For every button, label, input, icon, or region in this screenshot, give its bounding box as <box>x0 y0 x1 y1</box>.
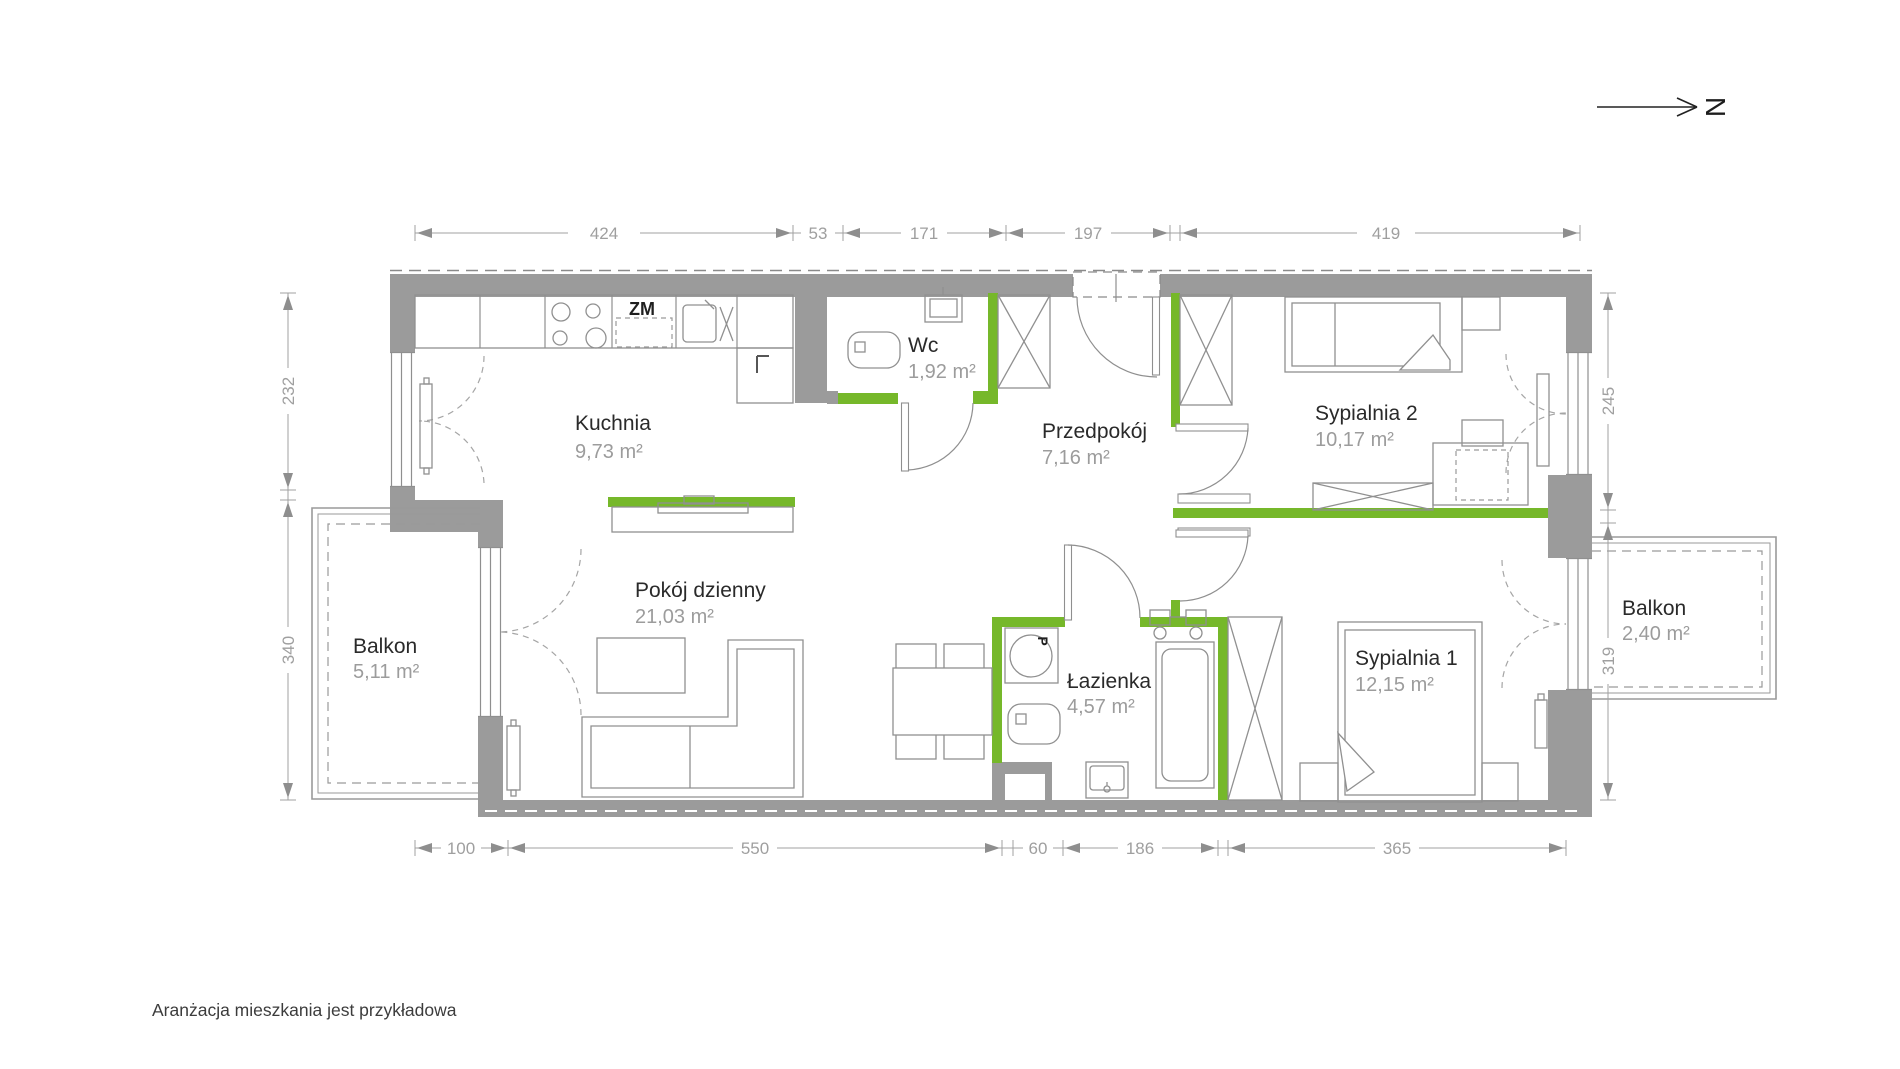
nightstand-right-icon <box>1482 763 1518 801</box>
sofa-icon <box>582 640 803 797</box>
dimension-bottom: 100 550 60 186 365 <box>415 839 1566 858</box>
dim-left-2: 340 <box>279 636 298 664</box>
room-name-lazienka: Łazienka <box>1067 670 1151 693</box>
dresser-bedroom2-icon <box>1313 483 1433 510</box>
window-bedroom1-balcony-door <box>1566 558 1592 690</box>
bathroom-sink-icon <box>1086 762 1128 798</box>
dim-bottom-5: 365 <box>1383 839 1411 858</box>
door-bedroom1 <box>1176 530 1248 601</box>
wardrobe-hall-icon <box>998 295 1050 388</box>
fridge-icon <box>737 348 793 403</box>
room-labels: Kuchnia 9,73 m² Wc 1,92 m² Przedpokój 7,… <box>353 334 1690 718</box>
washing-machine-label: P <box>1035 636 1051 645</box>
bathroom-toilet-icon <box>1008 704 1060 744</box>
door-wc <box>902 403 974 471</box>
bed-single-icon <box>1285 297 1462 372</box>
dimension-left: 232 340 <box>279 293 298 800</box>
wc-toilet-icon <box>848 332 900 368</box>
kitchen-sink-icon <box>683 300 733 342</box>
radiator-bedroom1-icon <box>1535 694 1547 748</box>
footer-note: Aranżacja mieszkania jest przykładowa <box>152 1000 457 1020</box>
north-label: N <box>1700 97 1731 117</box>
window-kitchen <box>390 352 415 487</box>
room-name-kuchnia: Kuchnia <box>575 412 651 435</box>
stove-icon <box>552 303 606 348</box>
room-name-balkon-prawy: Balkon <box>1622 597 1686 620</box>
room-area-pokoj-dzienny: 21,03 m² <box>635 606 714 628</box>
room-name-sypialnia1: Sypialnia 1 <box>1355 647 1458 670</box>
wardrobe-bedroom2-icon <box>1180 295 1232 405</box>
dimension-right: 245 319 <box>1599 293 1618 800</box>
dim-top-5: 419 <box>1372 224 1400 243</box>
dim-bottom-3: 60 <box>1029 839 1048 858</box>
room-name-sypialnia2: Sypialnia 2 <box>1315 402 1418 425</box>
door-bedroom2 <box>1176 424 1248 494</box>
entrance-recess <box>1073 272 1160 302</box>
dim-bottom-1: 100 <box>447 839 475 858</box>
room-name-wc: Wc <box>908 334 938 357</box>
window-living <box>478 547 503 717</box>
dim-bottom-2: 550 <box>741 839 769 858</box>
room-name-pokoj-dzienny: Pokój dzienny <box>635 579 766 602</box>
dim-bottom-4: 186 <box>1126 839 1154 858</box>
bathtub-icon <box>1156 642 1214 788</box>
window-bedroom2 <box>1566 352 1592 475</box>
dining-set-icon <box>893 644 992 759</box>
dim-top-3: 171 <box>910 224 938 243</box>
dim-top-4: 197 <box>1074 224 1102 243</box>
door-bathroom <box>1065 545 1141 620</box>
room-area-balkon-prawy: 2,40 m² <box>1622 623 1690 645</box>
room-area-kuchnia: 9,73 m² <box>575 441 643 463</box>
dim-left-1: 232 <box>279 377 298 405</box>
dim-top-1: 424 <box>590 224 618 243</box>
desk-icon <box>1433 420 1528 505</box>
north-arrow: N <box>1597 97 1731 117</box>
room-area-sypialnia2: 10,17 m² <box>1315 429 1394 451</box>
wardrobe-bedroom1-icon <box>1228 617 1282 800</box>
room-area-sypialnia1: 12,15 m² <box>1355 674 1434 696</box>
dishwasher-icon <box>616 318 672 347</box>
entrance-door <box>1077 297 1160 377</box>
dim-top-2: 53 <box>809 224 828 243</box>
nightstand-left-icon <box>1300 763 1338 801</box>
room-name-przedpokoj: Przedpokój <box>1042 420 1147 443</box>
dim-right-2: 319 <box>1599 647 1618 675</box>
radiator-bedroom2-icon <box>1537 374 1549 466</box>
dimension-top: 424 53 171 197 419 <box>415 224 1580 243</box>
room-area-wc: 1,92 m² <box>908 361 976 383</box>
room-area-balkon-lewy: 5,11 m² <box>353 661 420 683</box>
radiator-living-icon <box>507 720 520 796</box>
dishwasher-label: ZM <box>629 299 655 319</box>
room-area-przedpokoj: 7,16 m² <box>1042 447 1110 469</box>
dim-right-1: 245 <box>1599 387 1618 415</box>
coffee-table-icon <box>597 638 685 693</box>
room-name-balkon-lewy: Balkon <box>353 635 417 658</box>
kitchen-counter <box>415 295 793 348</box>
radiator-kitchen-icon <box>420 378 432 474</box>
room-area-lazienka: 4,57 m² <box>1067 696 1135 718</box>
nightstand-bedroom2-icon <box>1462 297 1500 330</box>
floor-plan: ZM P <box>0 0 1900 1069</box>
